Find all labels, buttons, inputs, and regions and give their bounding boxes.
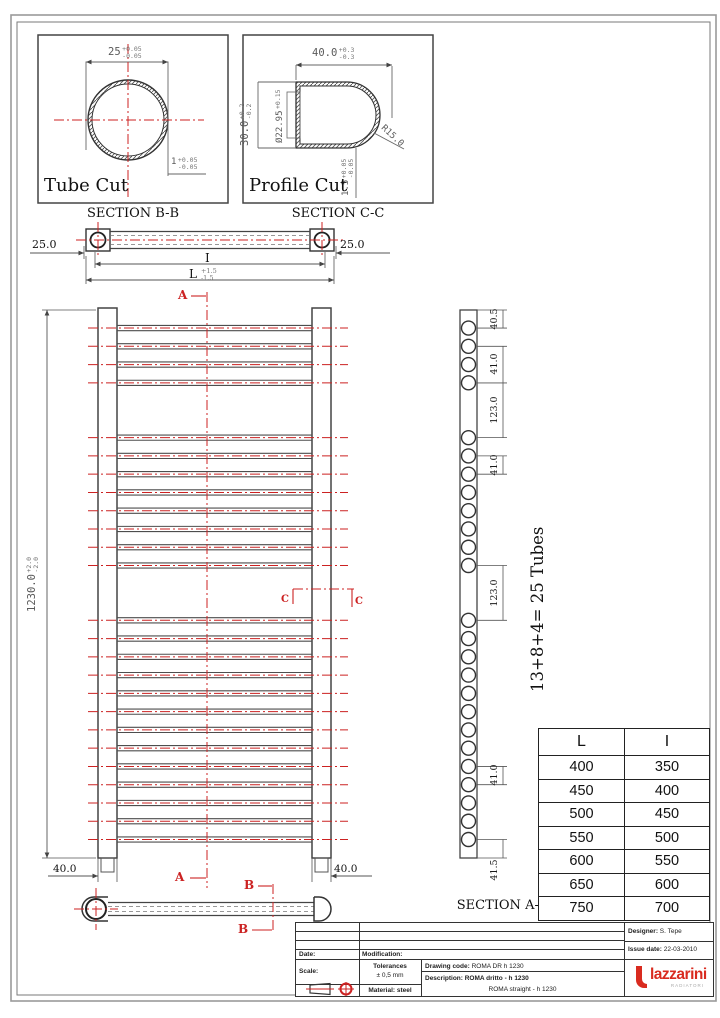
tube-end-circle — [462, 668, 476, 682]
cut-a-bottom-label: A — [175, 871, 184, 883]
size-table-cell: 750 — [539, 896, 624, 920]
title-block: Date: Modification: Scale: Tolerances ± … — [295, 922, 714, 997]
modification-label: Modification: — [362, 951, 402, 958]
projection-symbol-icon — [306, 982, 358, 1001]
side-dim-label: 41.0 — [489, 353, 500, 374]
tube-cut-diameter-dim: 25 +0.05-0.05 — [108, 47, 142, 59]
section-cc-caption: SECTION C-C — [268, 206, 408, 221]
size-table-cell: 700 — [624, 896, 709, 920]
bottom-bar-view — [74, 884, 331, 932]
tube-end-circle — [462, 741, 476, 755]
profile-height-dim: 30.0 +0.2-0.2 — [240, 104, 252, 146]
tube-end-circle — [462, 321, 476, 335]
height-1230-dim: 1230.0 +2.0-2.0 — [27, 557, 39, 612]
side-dim-label: 41.0 — [489, 764, 500, 785]
scale-label: Scale: — [299, 968, 318, 975]
size-table-header-i: I — [624, 729, 709, 755]
cut-b-top-label: B — [244, 879, 254, 891]
size-table-cell: 350 — [624, 755, 709, 779]
size-table-cell: 500 — [624, 826, 709, 850]
size-table-cell: 400 — [539, 755, 624, 779]
cut-c-right-label: C — [355, 596, 363, 608]
size-table-cell: 550 — [539, 826, 624, 850]
designer-row: Designer: S. Tepe — [628, 928, 682, 935]
tube-end-circle — [462, 632, 476, 646]
tube-end-circle — [462, 705, 476, 719]
tube-end-circle — [462, 778, 476, 792]
profile-width-dim: 40.0 +0.3-0.3 — [312, 48, 354, 60]
side-dim-label: 40.5 — [489, 308, 500, 329]
tube-count-note: 13+8+4= 25 Tubes — [528, 527, 547, 692]
tube-end-circle — [462, 358, 476, 372]
size-table: L I 400350450400500450550500600550650600… — [538, 728, 710, 921]
size-table-cell: 450 — [539, 779, 624, 803]
front-view — [42, 292, 372, 888]
tube-cut-wall-dim: 1 +0.05-0.05 — [171, 158, 198, 170]
tube-end-circle — [462, 449, 476, 463]
profile-cut-title: Profile Cut — [249, 175, 347, 196]
brand-subtitle: RADIATORI — [626, 983, 704, 988]
tube-end-circle — [462, 376, 476, 390]
tube-end-circle — [462, 796, 476, 810]
material-value: Material: steel — [359, 987, 421, 994]
side-dim-label: 123.0 — [489, 396, 500, 423]
tube-end-circle — [462, 431, 476, 445]
size-table-cell: 550 — [624, 849, 709, 873]
tube-end-circle — [462, 559, 476, 573]
outer-length-label: L +1.5-1.5 — [189, 267, 217, 281]
tube-end-circle — [462, 485, 476, 499]
issue-date-row: Issue date: 22-03-2010 — [628, 946, 697, 953]
tube-end-circle — [462, 613, 476, 627]
tube-end-circle — [462, 833, 476, 847]
description-row: Description: ROMA dritto - h 1230 — [425, 975, 529, 982]
tube-end-circle — [462, 339, 476, 353]
size-table-cell: 500 — [539, 802, 624, 826]
tube-end-circle — [462, 723, 476, 737]
inner-length-label: I — [205, 251, 210, 265]
cut-b-bottom-label: B — [238, 923, 248, 935]
tolerances-label: Tolerances — [359, 963, 421, 970]
description-en-row: ROMA straight - h 1230 — [421, 986, 624, 993]
side-section-view: 40.541.0123.041.0123.041.041.5 — [460, 308, 507, 880]
tube-end-circle — [462, 522, 476, 536]
cut-a-top-label: A — [178, 289, 187, 301]
engineering-drawing-sheet: 40.541.0123.041.0123.041.041.5 25 +0.05-… — [0, 0, 720, 1018]
cut-c-left-label: C — [281, 594, 289, 606]
brand-name: lazzarini — [650, 966, 707, 984]
top-right-25-dim: 25.0 — [340, 238, 365, 251]
tube-end-circle — [462, 540, 476, 554]
tube-end-circle — [462, 650, 476, 664]
size-table-cell: 400 — [624, 779, 709, 803]
tube-end-circle — [462, 504, 476, 518]
side-dim-label: 123.0 — [489, 579, 500, 606]
tolerances-value: ± 0,5 mm — [359, 972, 421, 979]
top-left-25-dim: 25.0 — [32, 238, 57, 251]
date-label: Date: — [299, 951, 315, 958]
lazzarini-logo-icon — [633, 965, 648, 995]
tube-end-circle — [462, 686, 476, 700]
size-table-header-l: L — [539, 729, 624, 755]
side-dim-label: 41.0 — [489, 454, 500, 475]
tube-end-circle — [462, 759, 476, 773]
size-table-cell: 600 — [624, 873, 709, 897]
side-dim-label: 41.5 — [489, 859, 500, 880]
collector-40-dim-right: 40.0 — [334, 863, 357, 875]
collector-40-dim-left: 40.0 — [53, 863, 76, 875]
tube-cut-title: Tube Cut — [44, 175, 128, 196]
size-table-cell: 450 — [624, 802, 709, 826]
tube-end-circle — [462, 467, 476, 481]
profile-inner-dia-dim: Ø22.95 +0.15 — [276, 89, 285, 143]
tube-end-circle — [462, 814, 476, 828]
drawing-code-row: Drawing code: ROMA DR h 1230 — [425, 963, 524, 970]
size-table-cell: 600 — [539, 849, 624, 873]
size-table-cell: 650 — [539, 873, 624, 897]
section-bb-caption: SECTION B-B — [63, 206, 203, 221]
